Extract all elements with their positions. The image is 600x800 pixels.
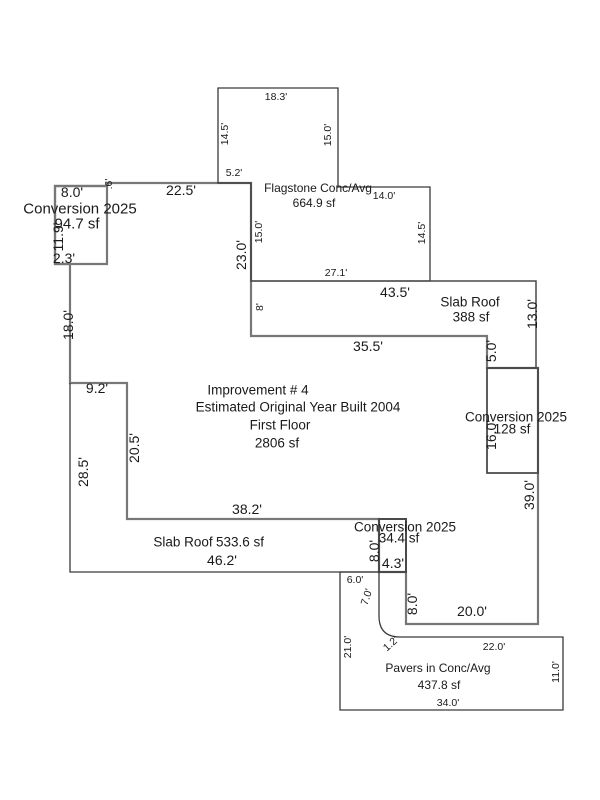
- dim-slab388-right: 13.0': [524, 299, 540, 329]
- label-slab388-area: 388 sf: [453, 310, 490, 325]
- label-first-floor-area: 2806 sf: [255, 436, 300, 451]
- label-slab388: Slab Roof: [440, 295, 500, 310]
- label-slab533: Slab Roof: [153, 535, 213, 550]
- dim-main-step-left: 9.2': [86, 380, 108, 396]
- label-flagstone: Flagstone Conc/Avg: [264, 181, 372, 195]
- label-conversion-bottom-area: 34.4 sf: [379, 531, 420, 546]
- dim-topleft-step: .6': [103, 179, 115, 190]
- dim-slab388-top: 43.5': [380, 284, 410, 300]
- dim-slab388-left: 8': [254, 303, 266, 311]
- dim-main-top: 22.5': [166, 182, 196, 198]
- dim-flagstone-notch: 5.2': [226, 167, 243, 179]
- dim-pavers-right: 11.0': [550, 661, 562, 683]
- label-conversion-right-area: 128 sf: [494, 422, 531, 437]
- dim-flagstone-top: 18.3': [265, 91, 287, 103]
- dim-conversion128-left: 16.0': [483, 420, 499, 450]
- dim-main-bottom-step: 8.0': [404, 593, 420, 615]
- appraisal-sketch-page: Conversion 202594.7 sf8.0'11.9'2.3'.6'22…: [0, 0, 600, 800]
- label-slab533-area: 533.6 sf: [216, 535, 264, 550]
- label-flagstone-area: 664.9 sf: [293, 196, 336, 210]
- dim-conversion34-bottom: 4.3': [382, 555, 404, 571]
- dim-flagstone-bottom: 27.1': [325, 267, 347, 279]
- dim-main-left-lower: 20.5': [126, 433, 142, 463]
- dim-main-bottom-left: 38.2': [232, 501, 262, 517]
- dim-main-right: 39.0': [521, 480, 537, 510]
- dim-flagstone-lower-right: 14.5': [416, 222, 428, 244]
- dim-conversion34-left: 8.0': [366, 540, 382, 562]
- floor-plan-sketch: Conversion 202594.7 sf8.0'11.9'2.3'.6'22…: [0, 0, 600, 800]
- dim-pavers-top-notch: 6.0': [347, 574, 364, 586]
- dim-flagstone-upper-left: 14.5': [219, 123, 231, 145]
- dim-main-bottom-right: 20.0': [457, 603, 487, 619]
- label-year-built: Estimated Original Year Built 2004: [196, 400, 401, 415]
- dim-pavers-left: 21.0': [342, 636, 354, 658]
- dim-flagstone-mid-top: 14.0': [373, 190, 395, 202]
- dim-pavers-top: 22.0': [483, 641, 505, 653]
- dim-flagstone-upper-right: 15.0': [322, 124, 334, 146]
- dim-pavers-bottom: 34.0': [437, 697, 459, 709]
- label-pavers: Pavers in Conc/Avg: [385, 661, 490, 675]
- dim-topleft-box-bottom: 2.3': [53, 250, 75, 266]
- dim-slab533-bottom: 46.2': [207, 552, 237, 568]
- dim-pavers-upper-left: 7.0': [359, 587, 376, 607]
- dim-topleft-box-top: 8.0': [61, 184, 83, 200]
- label-improvement: Improvement # 4: [207, 383, 309, 398]
- dim-flagstone-lower-left: 15.0': [253, 221, 265, 243]
- dim-main-left-mid: 18.0': [60, 310, 76, 340]
- label-first-floor: First Floor: [250, 418, 311, 433]
- dim-topleft-box-left: 11.9': [50, 223, 66, 252]
- dim-slab533-left: 28.5': [75, 457, 91, 487]
- dim-main-step-right: 5.0': [483, 340, 499, 362]
- dim-main-left-upper: 23.0': [233, 240, 249, 270]
- label-pavers-area: 437.8 sf: [418, 678, 461, 692]
- dim-main-top-right: 35.5': [353, 338, 383, 354]
